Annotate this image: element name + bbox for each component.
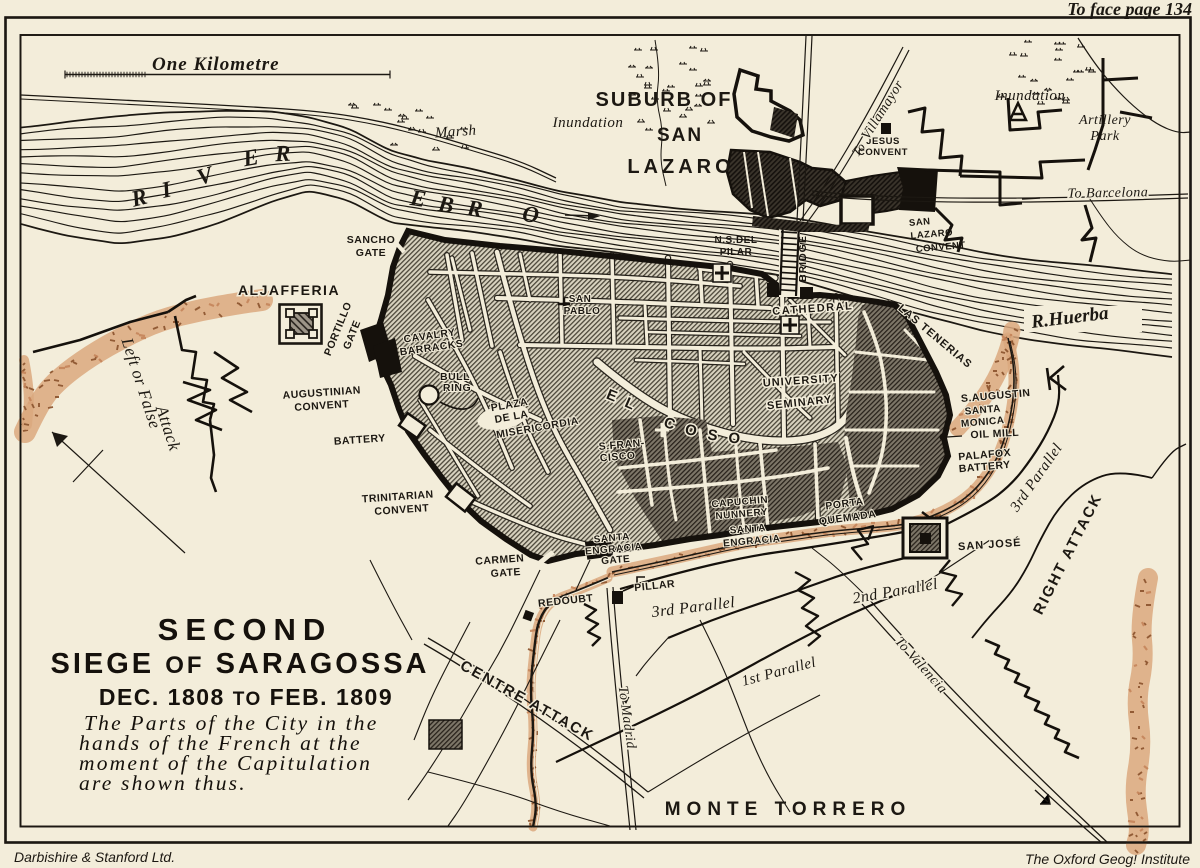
svg-text:Marsh: Marsh	[433, 123, 477, 142]
svg-text:SECOND: SECOND	[158, 612, 333, 647]
svg-text:Inundation: Inundation	[552, 115, 624, 131]
svg-text:SAN: SAN	[569, 294, 592, 305]
svg-text:SANCHO: SANCHO	[347, 234, 396, 246]
svg-text:B: B	[436, 191, 456, 218]
svg-text:BRIDGE: BRIDGE	[797, 235, 809, 282]
svg-text:R: R	[274, 141, 291, 167]
svg-text:O: O	[728, 430, 741, 448]
svg-text:GATE: GATE	[490, 566, 521, 580]
svg-text:R: R	[465, 195, 484, 222]
svg-text:PILAR: PILAR	[720, 247, 753, 258]
svg-text:ALJAFFERIA: ALJAFFERIA	[238, 282, 340, 298]
svg-text:are shown thus.: are shown thus.	[79, 771, 247, 795]
svg-text:SUBURB OF: SUBURB OF	[596, 89, 733, 111]
svg-text:The Oxford Geog! Institute: The Oxford Geog! Institute	[1025, 851, 1190, 867]
svg-text:Park: Park	[1089, 129, 1120, 144]
svg-text:Darbishire & Stanford Ltd.: Darbishire & Stanford Ltd.	[14, 849, 175, 865]
svg-text:To Barcelona: To Barcelona	[1067, 185, 1148, 201]
svg-text:MONTE TORRERO: MONTE TORRERO	[665, 799, 912, 820]
svg-text:PABLO: PABLO	[564, 306, 601, 317]
svg-text:Artillery: Artillery	[1078, 113, 1131, 128]
svg-text:N.S.DEL: N.S.DEL	[715, 235, 758, 246]
svg-text:LAZARO: LAZARO	[627, 156, 734, 178]
svg-text:O: O	[521, 201, 540, 227]
svg-text:One Kilometre: One Kilometre	[152, 54, 280, 75]
svg-text:SAN: SAN	[909, 216, 931, 229]
svg-text:SIEGE OF SARAGOSSA: SIEGE OF SARAGOSSA	[50, 648, 429, 680]
svg-text:To face page 134: To face page 134	[1067, 0, 1192, 19]
svg-text:SAN: SAN	[657, 125, 703, 146]
svg-text:OIL MILL: OIL MILL	[970, 427, 1019, 442]
svg-text:RING: RING	[443, 382, 471, 394]
svg-text:Inundation: Inundation	[994, 88, 1066, 104]
svg-text:GATE: GATE	[356, 247, 386, 259]
